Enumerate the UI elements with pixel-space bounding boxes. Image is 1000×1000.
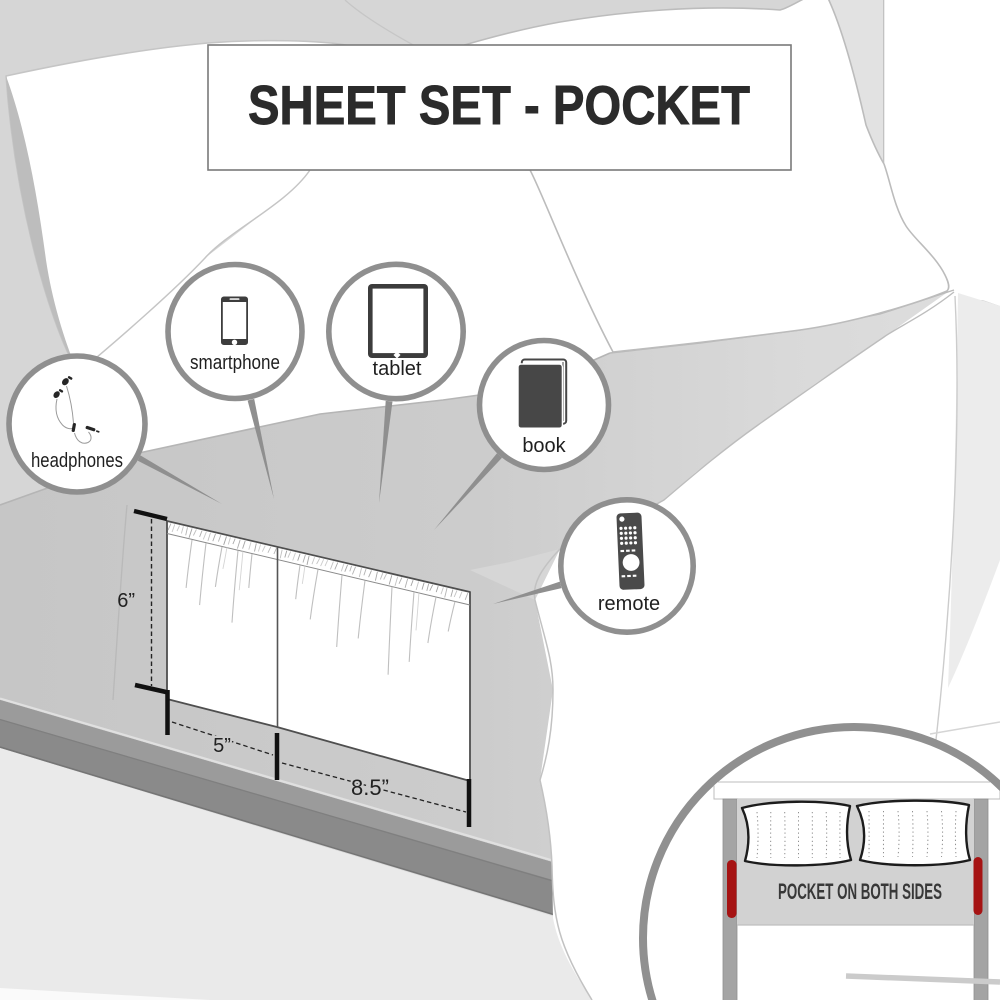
svg-text:SHEET SET - POCKET: SHEET SET - POCKET bbox=[248, 74, 750, 136]
svg-text:tablet: tablet bbox=[373, 358, 422, 380]
svg-text:remote: remote bbox=[598, 593, 660, 615]
svg-text:8.5”: 8.5” bbox=[351, 775, 389, 800]
svg-text:smartphone: smartphone bbox=[190, 352, 280, 374]
svg-text:POCKET ON BOTH SIDES: POCKET ON BOTH SIDES bbox=[778, 879, 942, 904]
svg-text:6”: 6” bbox=[117, 590, 135, 612]
svg-text:book: book bbox=[522, 435, 566, 457]
svg-text:headphones: headphones bbox=[31, 450, 123, 472]
svg-text:5”: 5” bbox=[213, 735, 231, 757]
